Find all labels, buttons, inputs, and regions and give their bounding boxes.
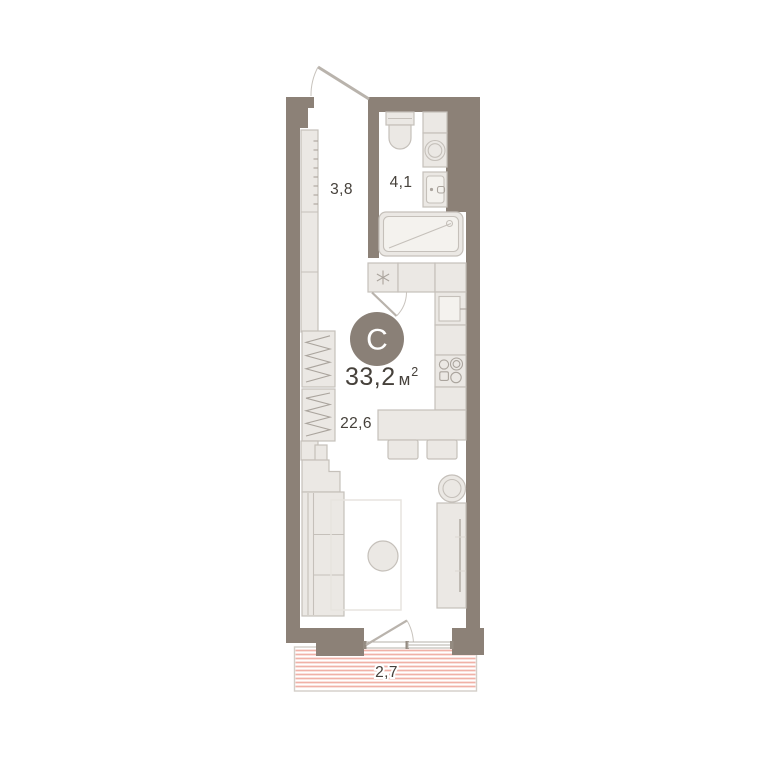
room-area-balcony: 2,7 [375,664,398,681]
room-area-bathroom: 4,1 [390,174,413,191]
apartment-type-badge: C [350,312,404,366]
armchair [439,475,466,502]
wall-right [466,97,480,655]
door-jamb [363,641,367,649]
washing-machine [423,133,447,167]
kitchen-counter-corner [435,263,466,292]
balcony-window [408,641,454,649]
fridge [368,263,398,292]
dining-chair [388,440,418,459]
wall-top-left-step [286,97,308,128]
bathtub [379,212,463,256]
sink-drain [430,188,433,191]
window-jamb [450,641,454,649]
floor-plan-svg: C 33,2м2 3,8 4,1 22,6 2,7 [0,0,768,768]
hallway-closet [301,130,318,332]
bathroom-shelf [423,112,447,133]
kitchen-sink [435,292,467,325]
wardrobe-upper [302,331,335,387]
room-area-living-room: 22,6 [340,415,372,432]
wall-left [286,97,300,642]
entrance-door [311,67,369,99]
wall-top [368,97,480,112]
stove [435,355,466,387]
wall-bottom-right [452,628,484,655]
toilet [386,112,414,149]
room-area-hallway: 3,8 [330,181,353,198]
floor-plan: C 33,2м2 3,8 4,1 22,6 2,7 [0,0,768,768]
kitchen-counter-top [398,263,435,292]
wall-bathroom-left [368,112,379,258]
kitchen-counter-low [435,387,466,410]
kitchen-counter-mid [435,325,466,355]
wall-bottom-left-step [316,643,364,656]
badge-letter: C [366,324,388,357]
dining-chair [427,440,457,459]
coffee-table [368,541,398,571]
dining-table [378,410,466,440]
wall-bathroom-right [446,112,466,212]
sofa [302,492,344,616]
tv-stand [437,503,466,608]
wall-bottom-left [286,628,364,643]
bathroom-sink [423,172,447,207]
wardrobe-lower [302,389,335,441]
